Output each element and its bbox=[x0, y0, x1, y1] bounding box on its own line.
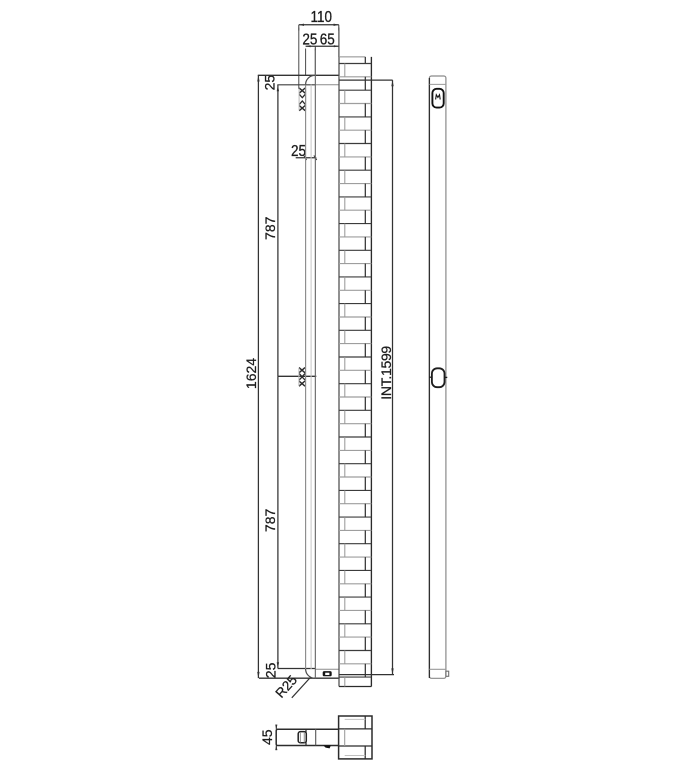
svg-text:25: 25 bbox=[302, 31, 317, 48]
svg-text:787: 787 bbox=[262, 509, 278, 533]
svg-text:25: 25 bbox=[291, 143, 306, 160]
svg-text:787: 787 bbox=[262, 216, 278, 240]
svg-text:1624: 1624 bbox=[243, 358, 259, 389]
svg-text:25: 25 bbox=[262, 662, 278, 678]
svg-text:45: 45 bbox=[259, 729, 275, 745]
svg-text:65: 65 bbox=[320, 31, 335, 48]
svg-text:25: 25 bbox=[262, 75, 278, 91]
svg-text:INT.1599: INT.1599 bbox=[378, 346, 394, 400]
svg-text:110: 110 bbox=[311, 9, 333, 26]
